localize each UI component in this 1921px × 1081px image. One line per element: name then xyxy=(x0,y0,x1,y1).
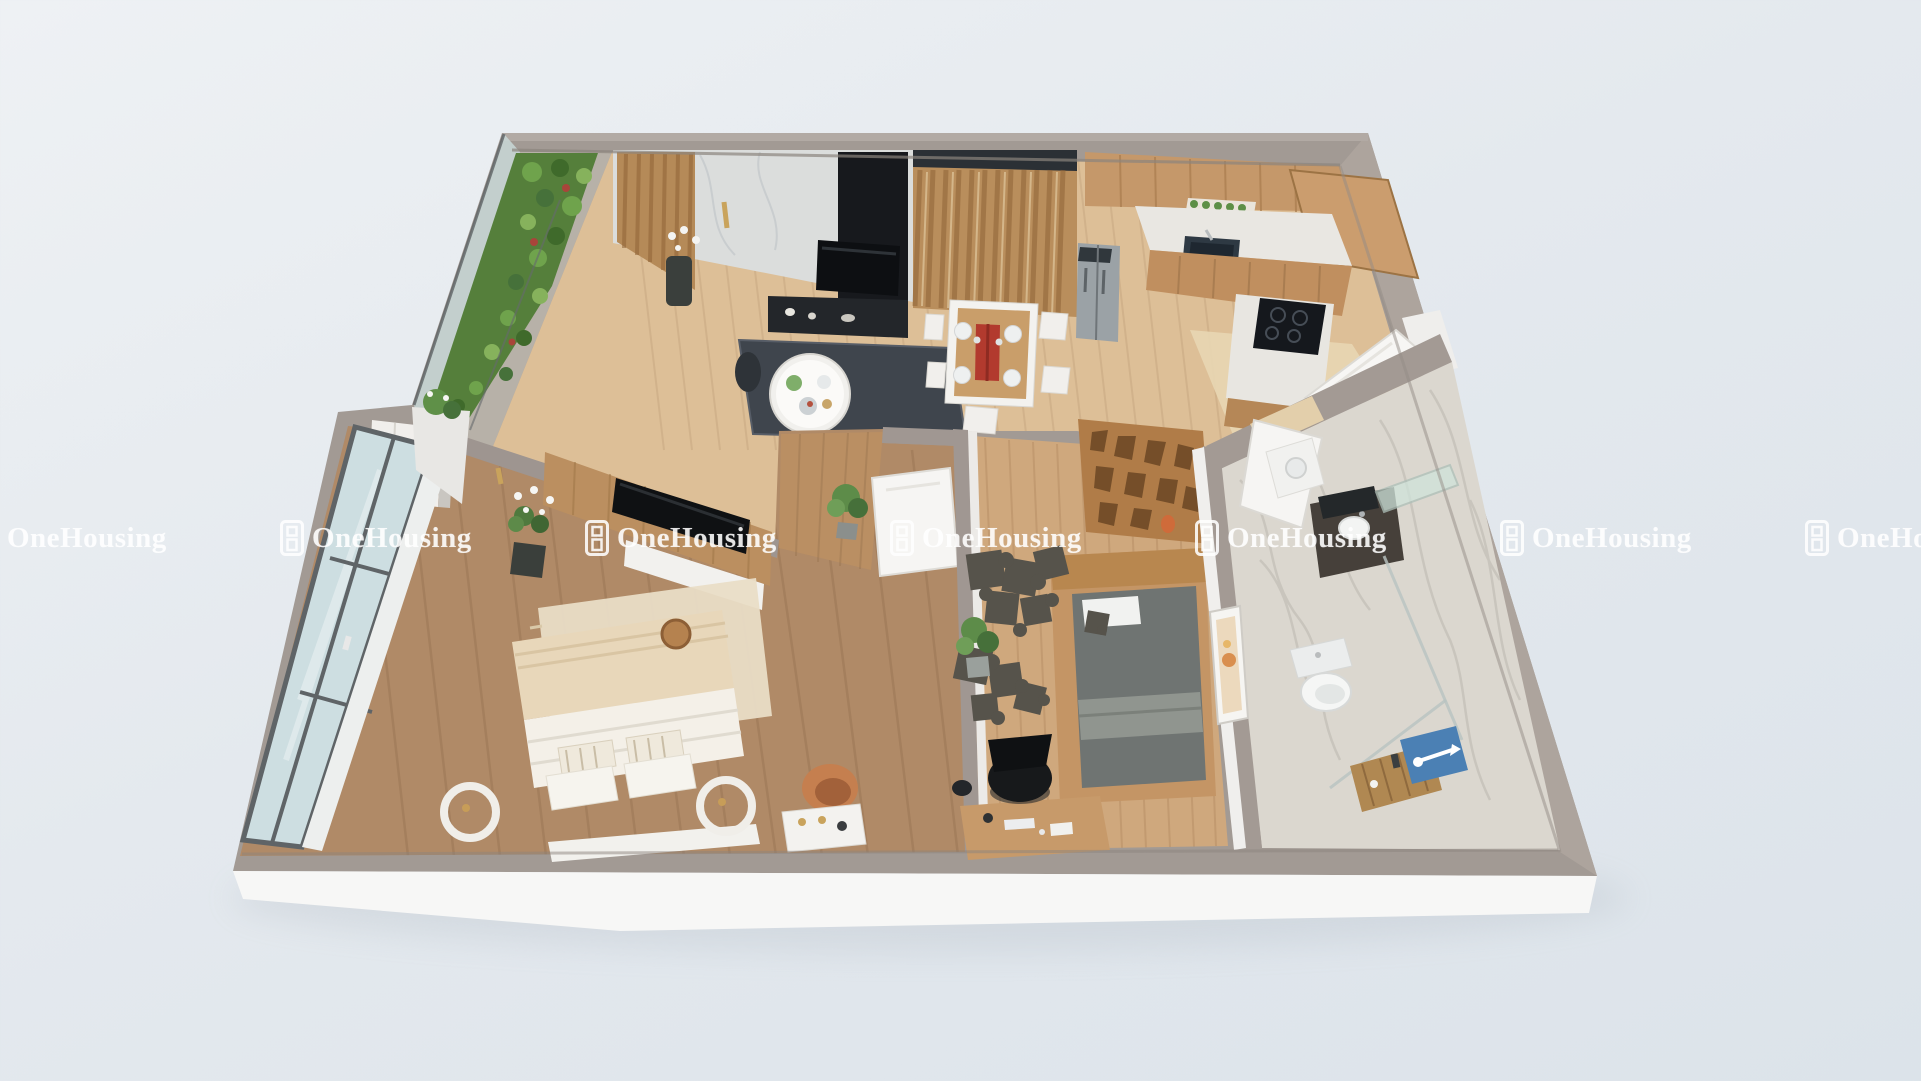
tv-console xyxy=(768,296,908,338)
dining-slat-wall xyxy=(913,150,1077,317)
cooktop xyxy=(1253,298,1326,355)
apartment-3d-render xyxy=(0,0,1921,1081)
wall-art-accent xyxy=(1222,653,1236,667)
wood-tray xyxy=(662,620,690,648)
toilet-seat xyxy=(1315,684,1345,704)
desk-mouse xyxy=(1039,829,1045,835)
dining-chair-right-1 xyxy=(1039,312,1068,340)
table-dish-small xyxy=(822,399,832,409)
terracotta-chair-seat xyxy=(815,778,851,806)
flush-button xyxy=(1315,652,1321,658)
dining-chair-right-2 xyxy=(1041,366,1070,394)
console-decor xyxy=(785,308,795,316)
desk-paper xyxy=(1050,822,1073,836)
table-dish-white xyxy=(817,375,831,389)
plate-1 xyxy=(955,323,972,340)
soap-dish xyxy=(1370,780,1378,788)
office-chair-back xyxy=(988,734,1052,772)
dining-chair-bottom xyxy=(963,406,998,434)
vanity-sink xyxy=(1339,517,1369,539)
laser-cut-partition xyxy=(1078,419,1211,544)
coffee-table-top xyxy=(776,360,844,428)
second-bedroom-study xyxy=(952,419,1228,860)
single-bed xyxy=(1050,548,1216,804)
console-decor-2 xyxy=(808,313,816,320)
table-dish-green xyxy=(786,375,802,391)
wall-art-accent-2 xyxy=(1223,640,1231,648)
desk-mug xyxy=(983,813,993,823)
glass-1 xyxy=(974,337,981,344)
floor-plan-page: OneHousing OneHousing OneHousing OneHous… xyxy=(0,0,1921,1081)
dining-chair-left-2 xyxy=(926,362,946,388)
living-rug-area xyxy=(735,340,966,440)
wall-sconce xyxy=(724,202,727,228)
floor-bag xyxy=(952,780,972,796)
table-accent xyxy=(807,401,813,407)
glass-2 xyxy=(996,339,1003,346)
console-decor-3 xyxy=(841,314,855,322)
bedroom1-sconce xyxy=(498,468,501,484)
plate-2 xyxy=(1005,326,1022,343)
desk-keyboard xyxy=(1004,818,1035,830)
runner-fold xyxy=(987,324,988,381)
side-table-bowl xyxy=(837,821,847,831)
vanity-faucet xyxy=(1359,511,1365,517)
bedroom1-door-leaf xyxy=(872,468,958,576)
mat-arrow-dot xyxy=(1413,757,1423,767)
dining-chair-left-1 xyxy=(924,314,944,340)
nightstand-decor-1 xyxy=(462,804,470,812)
door-stub-wall xyxy=(882,427,958,446)
plate-4 xyxy=(1004,370,1021,387)
nightstand-decor-2 xyxy=(718,798,726,806)
floor-planter xyxy=(735,352,761,392)
top-wall-lip xyxy=(502,133,1368,141)
orange-vase xyxy=(1161,515,1175,533)
side-table-decor-1 xyxy=(798,818,806,826)
fridge xyxy=(1076,243,1120,342)
plate-3 xyxy=(954,367,971,384)
side-table-decor-2 xyxy=(818,816,826,824)
white-side-table xyxy=(782,804,866,852)
